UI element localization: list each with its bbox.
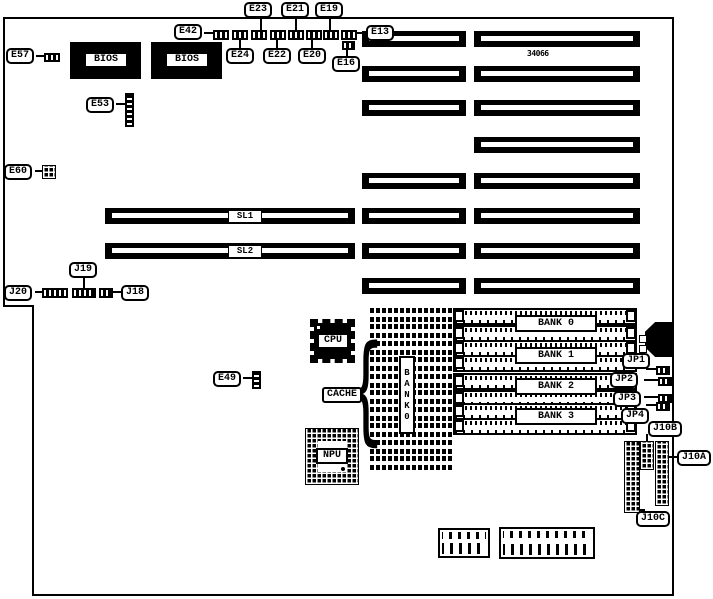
callout-line-jp2 bbox=[644, 379, 659, 381]
callout-line-e21 bbox=[295, 16, 297, 30]
callout-e60: E60 bbox=[4, 164, 32, 180]
jumper-block bbox=[232, 30, 248, 40]
header-j10a bbox=[655, 441, 669, 506]
callout-e21: E21 bbox=[281, 2, 309, 18]
bank1-label: BANK 1 bbox=[515, 347, 597, 364]
callout-e13: E13 bbox=[366, 25, 394, 41]
callout-cache: CACHE bbox=[322, 387, 362, 403]
expansion-slot-segment bbox=[474, 243, 640, 259]
slot-sl2-label: SL2 bbox=[228, 245, 262, 258]
jumper-block-j20 bbox=[42, 288, 68, 298]
jumper-block-e16 bbox=[342, 41, 355, 50]
npu-label: NPU bbox=[316, 448, 348, 464]
callout-line-e19 bbox=[329, 16, 331, 30]
callout-line-e23 bbox=[260, 16, 262, 30]
callout-j10c: J10C bbox=[636, 511, 670, 527]
power-connector-teeth bbox=[442, 543, 486, 554]
jumper-block-e57 bbox=[44, 53, 60, 62]
expansion-slot-segment bbox=[474, 137, 640, 153]
callout-e20: E20 bbox=[298, 48, 326, 64]
callout-jp2: JP2 bbox=[610, 372, 638, 388]
board-edge-right bbox=[672, 17, 674, 596]
callout-line-jp3 bbox=[644, 396, 659, 398]
jumper-block-e19 bbox=[323, 30, 339, 40]
bank3-label: BANK 3 bbox=[515, 408, 597, 425]
callout-e57: E57 bbox=[6, 48, 34, 64]
callout-jp1: JP1 bbox=[622, 353, 650, 369]
expansion-slot-segment bbox=[362, 173, 466, 189]
callout-e49: E49 bbox=[213, 371, 241, 387]
expansion-slot-segment bbox=[362, 208, 466, 224]
jumper-block-e60 bbox=[42, 165, 56, 179]
expansion-slot-segment bbox=[362, 243, 466, 259]
dram-bank0-vertical-label: BANK0 bbox=[399, 356, 415, 434]
callout-e24: E24 bbox=[226, 48, 254, 64]
callout-j10b: J10B bbox=[648, 421, 682, 437]
bios-chip-1-label: BIOS bbox=[84, 52, 128, 68]
bios-chip-2-label: BIOS bbox=[165, 52, 209, 68]
board-edge-left-upper bbox=[3, 17, 5, 307]
jumper-block-e22 bbox=[306, 30, 322, 40]
callout-e23: E23 bbox=[244, 2, 272, 18]
jumper-block-jp2 bbox=[658, 377, 672, 386]
jumper-block-e20 bbox=[341, 30, 357, 40]
expansion-slot-segment bbox=[474, 208, 640, 224]
callout-j10a: J10A bbox=[677, 450, 711, 466]
callout-e53: E53 bbox=[86, 97, 114, 113]
callout-jp3: JP3 bbox=[613, 391, 641, 407]
expansion-slot-segment bbox=[474, 31, 640, 47]
power-connector-teeth bbox=[503, 544, 591, 555]
expansion-slot-segment bbox=[474, 100, 640, 116]
callout-e22: E22 bbox=[263, 48, 291, 64]
power-connector-pins bbox=[442, 532, 486, 539]
jumper-block-jp1 bbox=[656, 366, 670, 375]
bank0-label: BANK 0 bbox=[515, 315, 597, 332]
bios-chip-1: BIOS bbox=[70, 42, 141, 79]
header-j10b bbox=[640, 441, 654, 470]
power-connector-small bbox=[438, 528, 490, 558]
jumper-block-e49 bbox=[252, 371, 261, 389]
callout-e19: E19 bbox=[315, 2, 343, 18]
keyboard-connector bbox=[645, 322, 674, 357]
keyboard-connector-pin bbox=[639, 345, 647, 353]
expansion-slot-segment bbox=[362, 100, 466, 116]
cpu-pin1-dot bbox=[317, 326, 320, 329]
callout-e42: E42 bbox=[174, 24, 202, 40]
expansion-slot-segment bbox=[362, 278, 466, 294]
jumper-block-e53 bbox=[125, 93, 134, 127]
slot-part-marking: 34066 bbox=[527, 49, 549, 58]
callout-j20: J20 bbox=[4, 285, 32, 301]
callout-j18: J18 bbox=[121, 285, 149, 301]
expansion-slot-segment bbox=[474, 173, 640, 189]
expansion-slot-segment bbox=[362, 66, 466, 82]
callout-j19: J19 bbox=[69, 262, 97, 278]
callout-jp4: JP4 bbox=[621, 408, 649, 424]
expansion-slot-segment bbox=[474, 278, 640, 294]
board-edge-bottom bbox=[32, 594, 674, 596]
board-edge-step bbox=[3, 305, 34, 307]
callout-e16: E16 bbox=[332, 56, 360, 72]
header-j10c bbox=[624, 441, 640, 513]
cache-chip bbox=[368, 456, 452, 470]
bank2-label: BANK 2 bbox=[515, 378, 597, 395]
jumper-block bbox=[213, 30, 229, 40]
jumper-block-e24 bbox=[270, 30, 286, 40]
slot-sl1-label: SL1 bbox=[228, 210, 262, 223]
board-edge-left-lower bbox=[32, 305, 34, 596]
keyboard-connector-pin bbox=[639, 335, 647, 343]
motherboard-diagram: E42 E23 E21 E19 E24 E22 E20 E13 E16 E57 … bbox=[0, 0, 713, 599]
cpu-label: CPU bbox=[317, 333, 349, 349]
callout-line-j18 bbox=[112, 291, 121, 293]
bios-chip-2: BIOS bbox=[151, 42, 222, 79]
npu-pin1-dot bbox=[341, 467, 345, 471]
power-connector-large bbox=[499, 527, 595, 559]
jumper-block-j18 bbox=[99, 288, 113, 298]
power-connector-pins bbox=[503, 531, 591, 538]
expansion-slot-segment bbox=[474, 66, 640, 82]
jumper-block-e23 bbox=[251, 30, 267, 40]
jumper-block-jp4 bbox=[656, 402, 670, 411]
jumper-block-e21 bbox=[288, 30, 304, 40]
jumper-block-j19 bbox=[72, 288, 96, 298]
